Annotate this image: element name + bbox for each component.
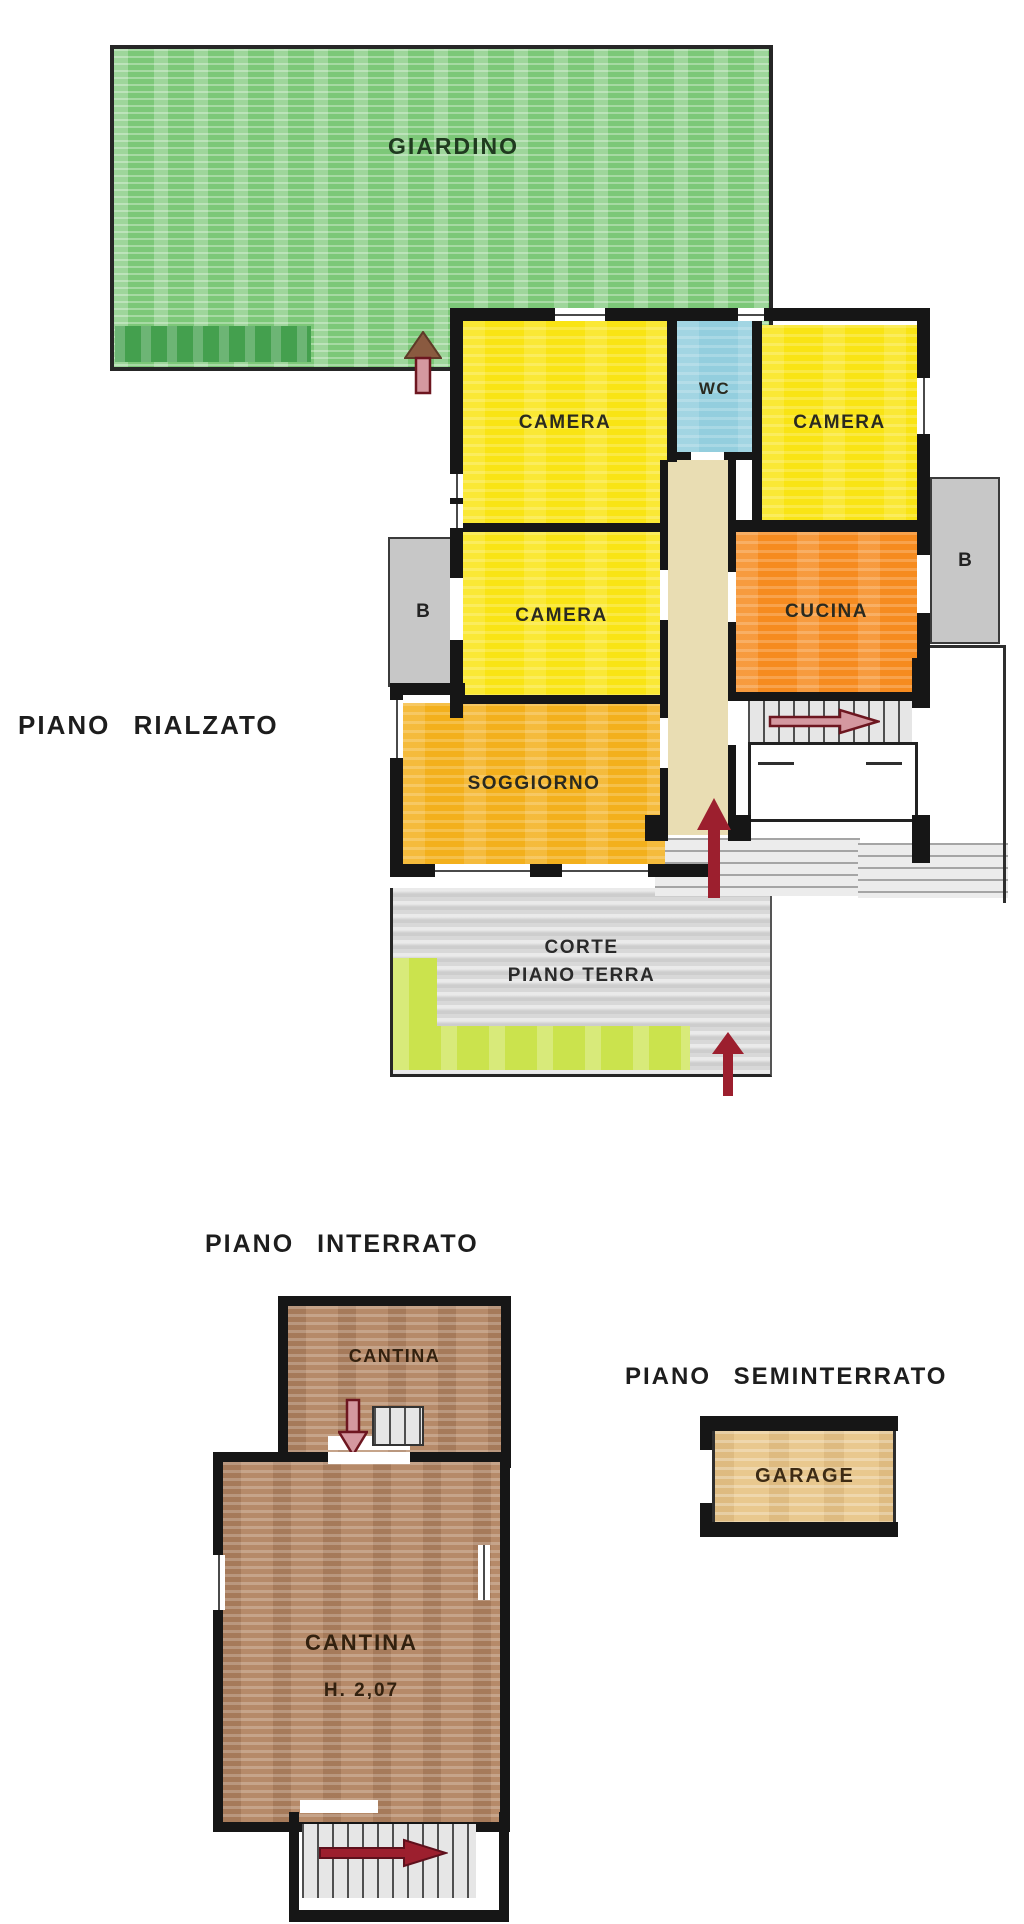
room-camera-top-left: CAMERA [463, 318, 667, 528]
floorplan-page: GIARDINO CORTE PIANO TERRA CAMERA WC CAM… [0, 0, 1024, 1924]
title-piano-rialzato: PIANO RIALZATO [18, 710, 279, 741]
stair-landing [748, 742, 918, 822]
wall-segment [912, 658, 930, 708]
room-wc-label: WC [699, 379, 730, 399]
garage-wall-top [712, 1416, 898, 1431]
room-camera-top-left-label: CAMERA [519, 412, 611, 434]
stairs-up-arrow-icon [768, 708, 880, 735]
window-opening [478, 1545, 490, 1600]
wall-segment [752, 312, 762, 520]
garden-label: GIARDINO [114, 133, 769, 160]
door-jamb [728, 815, 751, 841]
title-piano-seminterrato: PIANO SEMINTERRATO [625, 1363, 947, 1391]
balcony-left-label: B [416, 601, 430, 623]
landing-step-line [758, 762, 794, 765]
stair-outer-edge-horizontal [930, 645, 1006, 648]
main-entrance-arrow-icon [697, 798, 731, 898]
room-camera-top-right-label: CAMERA [793, 412, 885, 434]
door-opening [728, 572, 736, 622]
courtyard-label-line2: PIANO TERRA [393, 962, 770, 990]
room-cucina: CUCINA [736, 532, 917, 692]
garden-hedge [115, 326, 311, 362]
room-cucina-label: CUCINA [785, 601, 868, 623]
title-piano-interrato: PIANO INTERRATO [205, 1230, 479, 1259]
wall-segment [724, 452, 762, 460]
garage-label: GARAGE [755, 1465, 855, 1488]
courtyard-green-strip-horizontal [393, 1026, 690, 1070]
window-opening [390, 700, 403, 758]
garden-entrance-arrow-icon [404, 331, 442, 395]
balcony-right: B [930, 477, 1000, 644]
wall-segment [455, 695, 668, 704]
room-camera-top-right: CAMERA [762, 325, 917, 520]
balcony-left: B [388, 537, 458, 687]
cantina-stairs [372, 1406, 424, 1446]
window-opening [213, 1555, 225, 1610]
window-opening [435, 864, 530, 877]
cantina-main-room: CANTINA H. 2,07 [213, 1452, 510, 1832]
garage-wall-bottom [712, 1522, 898, 1537]
garage-room: GARAGE [714, 1431, 896, 1522]
wall-segment [736, 520, 930, 532]
garage-door-line [893, 1431, 896, 1522]
wall-segment [660, 460, 668, 835]
room-soggiorno-label: SOGGIORNO [468, 773, 601, 795]
side-steps [858, 843, 1008, 898]
courtyard-entrance-arrow-icon [712, 1032, 744, 1096]
window-opening [450, 504, 463, 528]
room-soggiorno: SOGGIORNO [403, 703, 665, 865]
courtyard-label-line1: CORTE [393, 934, 770, 962]
cantina-small-label: CANTINA [288, 1346, 501, 1367]
courtyard-label: CORTE PIANO TERRA [393, 934, 770, 990]
corridor [668, 460, 728, 835]
basement-stairs-arrow-icon [318, 1838, 448, 1868]
cantina-main-label: CANTINA [223, 1630, 500, 1656]
window-opening [917, 378, 930, 434]
wall-segment [390, 683, 465, 695]
door-jamb [645, 815, 668, 841]
wall-segment [450, 308, 930, 321]
cantina-height-label: H. 2,07 [223, 1680, 500, 1702]
wall-segment [463, 523, 667, 532]
balcony-right-label: B [958, 550, 972, 572]
wall-segment [667, 312, 677, 462]
garage-edge-line [712, 1431, 715, 1522]
window-opening [562, 864, 648, 877]
cantina-down-arrow-icon [338, 1398, 368, 1456]
wall-segment [728, 692, 930, 701]
room-wc: WC [677, 318, 752, 460]
wall-segment [677, 452, 691, 460]
door-opening [450, 578, 463, 640]
stair-outer-edge-vertical [1003, 645, 1006, 903]
door-opening [660, 570, 668, 620]
room-camera-mid-label: CAMERA [515, 605, 607, 627]
window-opening [555, 308, 605, 321]
window-opening [450, 474, 463, 498]
door-opening [660, 718, 668, 768]
window-opening [738, 308, 764, 321]
landing-step-line [866, 762, 902, 765]
door-opening [917, 555, 930, 613]
door-opening [328, 1452, 410, 1464]
room-camera-mid: CAMERA [463, 532, 660, 700]
wall-segment [912, 815, 930, 863]
door-opening [691, 452, 724, 460]
